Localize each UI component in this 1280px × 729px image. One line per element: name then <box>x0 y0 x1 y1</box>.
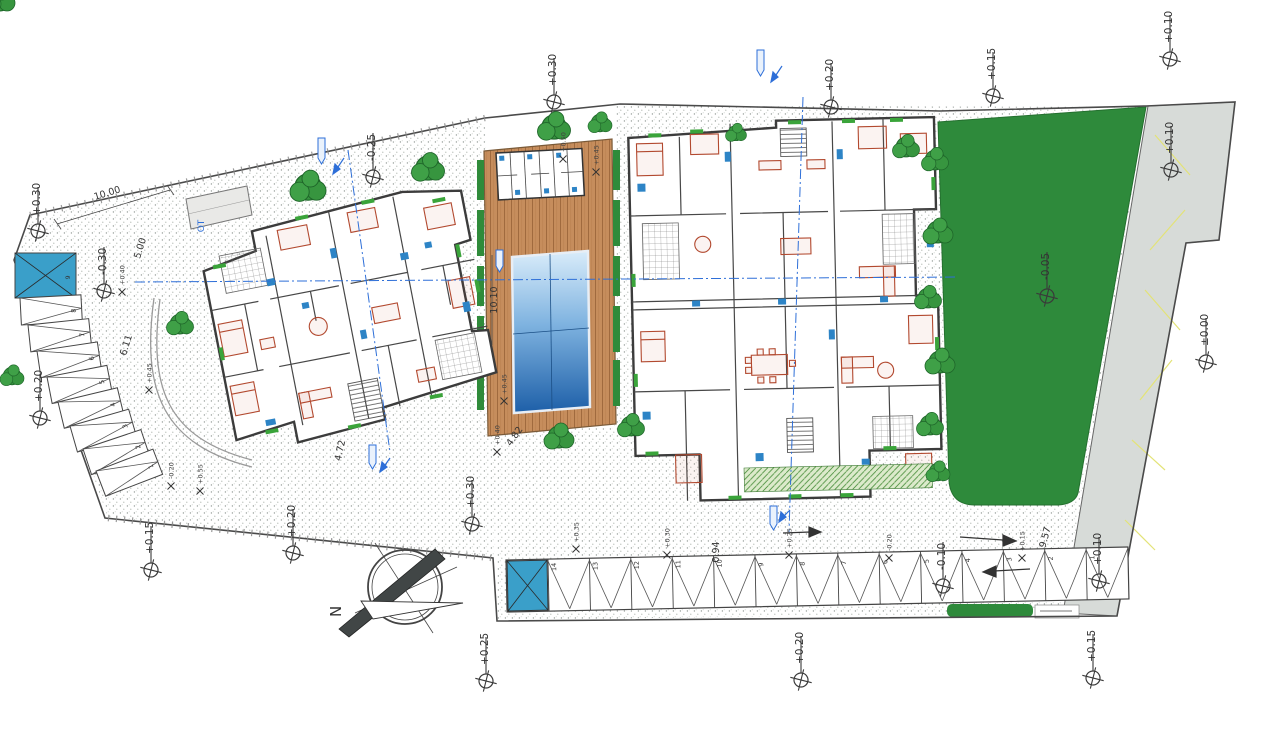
spot-elevation-label: -0.20 <box>886 534 894 551</box>
dimension-label: 0.94 <box>711 541 722 562</box>
parking-stall-number: 13 <box>591 562 599 570</box>
elevation-label: +0.15 <box>1086 630 1098 662</box>
spot-elevation-label: +0.50 <box>560 132 568 152</box>
spot-elevation-label: +0.25 <box>786 528 794 548</box>
lawn-band <box>744 464 932 492</box>
parking-stall-number: 6 <box>881 560 889 564</box>
spot-elevation-label: +0.55 <box>197 464 205 484</box>
pool-house <box>496 148 584 199</box>
swimming-pool <box>512 251 590 413</box>
elevation-label: +0.10 <box>1164 122 1176 154</box>
elevation-label: +0.15 <box>986 48 998 80</box>
annotation-label: OT <box>197 219 207 232</box>
parking-stall-number: 3 <box>1005 557 1013 561</box>
spot-elevation-label: +0.45 <box>501 374 509 394</box>
spot-elevation-label: -0.20 <box>168 462 176 479</box>
parking-stall-number: 8 <box>799 562 807 566</box>
spot-elevation-label: +0.30 <box>664 528 672 548</box>
stairs <box>780 128 807 157</box>
parking-stall-number: 7 <box>78 332 86 337</box>
parking-stall-number: 2 <box>1047 556 1055 560</box>
elevation-label: +0.15 <box>144 522 156 554</box>
parking-stall-number: 14 <box>550 563 558 571</box>
spot-elevation-label: +0.40 <box>494 425 502 445</box>
elevation-label: +0.10 <box>1092 533 1104 565</box>
parking-stall-number: 7 <box>840 561 848 565</box>
spot-elevation-label: +0.35 <box>573 522 581 542</box>
parking-stall-number: 12 <box>633 561 641 569</box>
spot-elevation-label: +0.45 <box>593 145 601 165</box>
elevation-label: +0.20 <box>824 59 836 91</box>
north-letter: N <box>327 606 345 617</box>
elevation-label: ±0.00 <box>1199 314 1211 346</box>
parking-stall-number: 9 <box>64 275 72 279</box>
elevation-label: +0.10 <box>1163 11 1175 43</box>
elevation-label: +0.20 <box>286 505 298 537</box>
elevation-label: +0.25 <box>479 633 491 665</box>
elevation-label: +0.30 <box>547 54 559 86</box>
parking-stall-number: 8 <box>70 308 78 313</box>
parking-stall <box>507 560 548 611</box>
parking-stall-number: 11 <box>674 560 682 568</box>
elevation-label: +0.20 <box>794 632 806 664</box>
site-plan-drawing: 987654321 1413121110987654321 N <box>0 0 1280 729</box>
elevation-label: +0.20 <box>33 370 45 402</box>
spot-elevation-label: +0.15 <box>1019 531 1027 551</box>
right-building-floorplan <box>628 117 942 502</box>
stairs <box>787 418 814 453</box>
parking-stall-number: 4 <box>964 558 972 562</box>
elevation-label: -0.05 <box>1040 253 1052 280</box>
elevation-label: +0.30 <box>465 476 477 508</box>
site-plan-sheet: 987654321 1413121110987654321 N <box>0 0 1280 729</box>
dimension-label: 10.10 <box>489 286 500 313</box>
spot-elevation-label: +0.40 <box>119 265 127 285</box>
elevation-label: -0.30 <box>97 248 109 275</box>
elevation-label: +0.30 <box>31 183 43 215</box>
spot-elevation-label: +0.45 <box>146 363 154 383</box>
parking-stall-number: 9 <box>757 562 765 566</box>
parking-stall: 9 <box>15 253 76 298</box>
elevation-label: -0.25 <box>366 134 378 161</box>
parking-stall-number: 5 <box>923 559 931 563</box>
misc-annotations: OT <box>197 219 207 232</box>
elevation-label: -0.10 <box>936 543 948 570</box>
